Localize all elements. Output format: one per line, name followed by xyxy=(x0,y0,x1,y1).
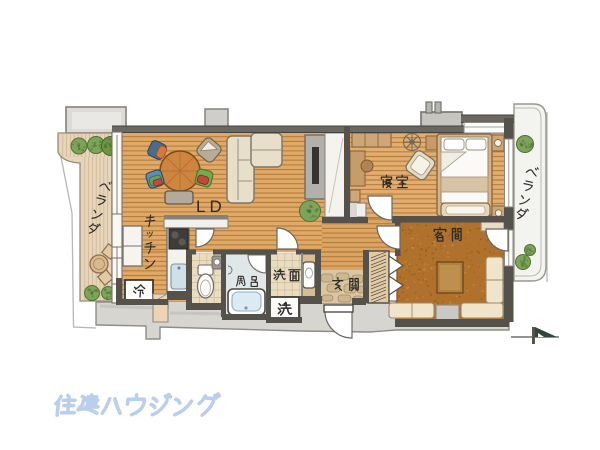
svg-text:LD: LD xyxy=(196,197,226,216)
